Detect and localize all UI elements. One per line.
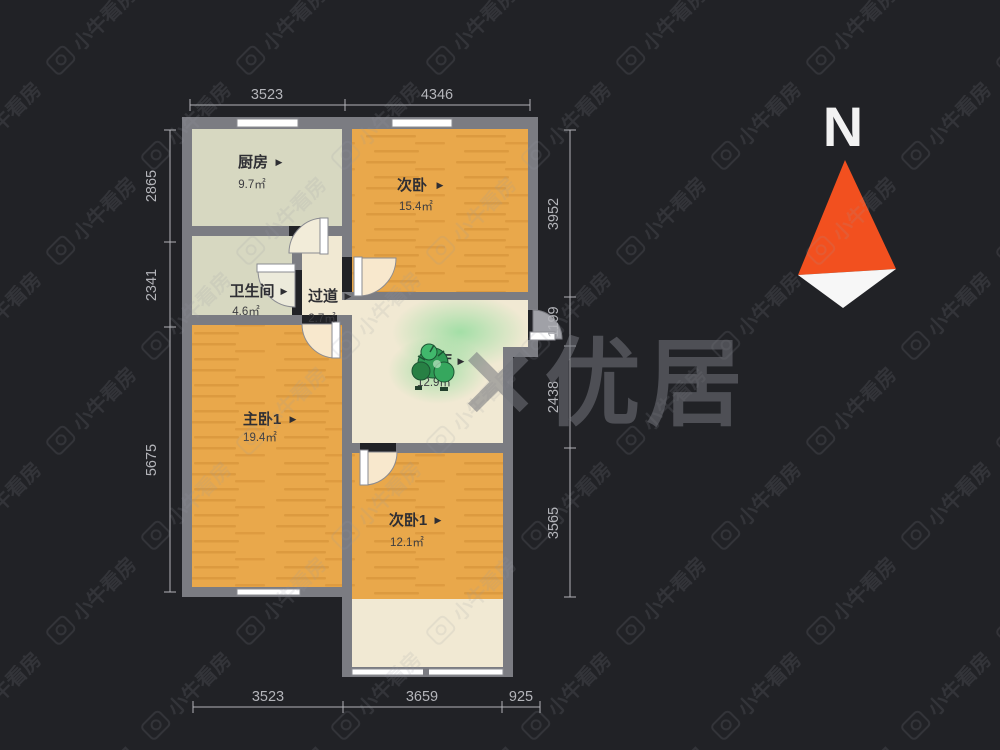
- dim-left-3: 5675: [144, 444, 160, 476]
- room-arrow-icon: ▶: [435, 515, 442, 525]
- dim-bottom-2: 3659: [406, 689, 438, 705]
- floor-plan: 厨房 ▶ 9.7㎡ 次卧 ▶ 15.4㎡ 卫生间 ▶ 4.6㎡ 过道 ▶ 2.7…: [0, 0, 1000, 750]
- window-master: [237, 589, 300, 595]
- dim-left-2: 2341: [144, 269, 160, 301]
- room-arrow-icon: ▶: [458, 356, 465, 366]
- room-area-hallway: 2.7㎡: [308, 312, 336, 325]
- balcony-floor: [352, 599, 503, 667]
- room-arrow-icon: ▶: [345, 291, 352, 301]
- dim-bottom-1: 3523: [252, 689, 284, 705]
- room-label-hallway: 过道: [308, 287, 338, 305]
- room-master-floor: [192, 325, 342, 587]
- north-arrow-white: [798, 269, 896, 308]
- floorplan-screenshot: 厨房 ▶ 9.7㎡ 次卧 ▶ 15.4㎡ 卫生间 ▶ 4.6㎡ 过道 ▶ 2.7…: [0, 0, 1000, 750]
- room-area-kitchen: 9.7㎡: [238, 178, 266, 191]
- window-balcony-mullion: [423, 668, 429, 676]
- dim-left-1: 2865: [144, 170, 160, 202]
- north-indicator: N: [798, 95, 896, 308]
- room-label-bedroom3: 次卧1: [389, 511, 427, 529]
- room-area-master: 19.4㎡: [243, 431, 277, 444]
- room-label-kitchen: 厨房: [238, 153, 268, 171]
- room-arrow-icon: ▶: [276, 157, 283, 167]
- room-arrow-icon: ▶: [290, 414, 297, 424]
- room-kitchen-floor: [192, 127, 342, 226]
- room-label-master: 主卧1: [243, 410, 281, 428]
- room-area-bedroom2: 15.4㎡: [399, 200, 433, 213]
- dim-right-4: 3565: [546, 507, 562, 539]
- dim-right-2: 1199: [546, 306, 562, 337]
- dim-bottom-3: 925: [509, 689, 533, 705]
- dim-right-1: 3952: [546, 198, 562, 230]
- room-area-bathroom: 4.6㎡: [232, 305, 260, 318]
- room-label-bedroom2: 次卧: [397, 176, 427, 194]
- north-arrow-red: [798, 160, 896, 275]
- dim-right-3: 2438: [546, 381, 562, 413]
- room-label-bathroom: 卫生间: [229, 282, 274, 300]
- window-kitchen: [237, 119, 298, 127]
- dim-top-1: 3523: [251, 87, 283, 103]
- floors: [192, 127, 528, 667]
- room-arrow-icon: ▶: [281, 286, 288, 296]
- room-arrow-icon: ▶: [437, 180, 444, 190]
- window-bedroom2: [392, 119, 452, 127]
- room-area-bedroom3: 12.1㎡: [390, 536, 424, 549]
- dim-top-2: 4346: [421, 87, 453, 103]
- north-label: N: [823, 95, 863, 158]
